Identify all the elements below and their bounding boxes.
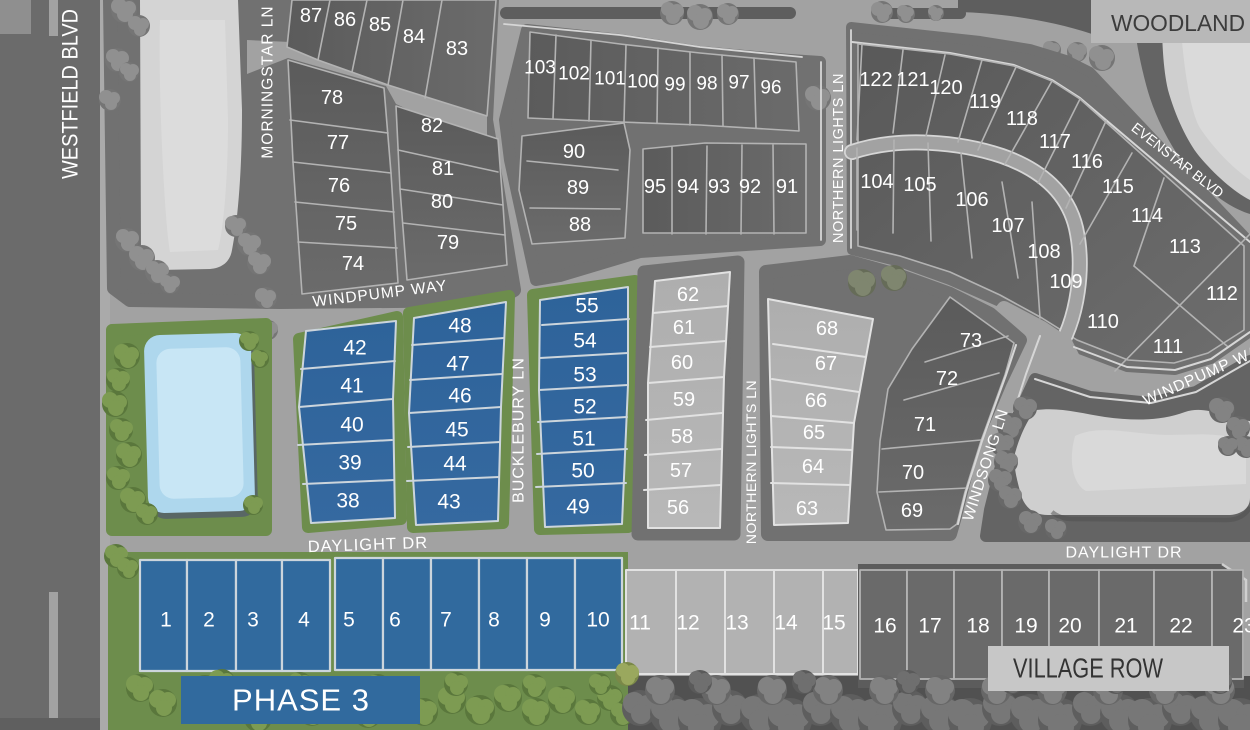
svg-text:23: 23 (1232, 615, 1250, 638)
svg-text:6: 6 (389, 609, 401, 632)
svg-text:112: 112 (1206, 283, 1238, 305)
svg-text:68: 68 (816, 318, 838, 340)
svg-text:106: 106 (955, 189, 988, 211)
svg-text:75: 75 (335, 213, 357, 235)
svg-text:56: 56 (667, 497, 689, 519)
svg-text:MORNINGSTAR LN: MORNINGSTAR LN (260, 5, 277, 158)
svg-text:47: 47 (446, 353, 469, 376)
svg-text:72: 72 (936, 368, 958, 390)
svg-text:92: 92 (739, 176, 761, 198)
svg-text:18: 18 (966, 615, 989, 638)
svg-text:64: 64 (802, 456, 824, 478)
svg-text:1: 1 (160, 609, 172, 632)
svg-text:96: 96 (760, 78, 781, 99)
svg-text:115: 115 (1102, 176, 1134, 198)
svg-text:11: 11 (629, 612, 651, 635)
svg-text:110: 110 (1087, 311, 1119, 333)
svg-text:17: 17 (918, 615, 941, 638)
svg-text:57: 57 (670, 460, 692, 482)
svg-text:NORTHERN LIGHTS LN: NORTHERN LIGHTS LN (831, 73, 847, 243)
svg-text:2: 2 (203, 609, 215, 632)
svg-text:51: 51 (572, 428, 595, 451)
svg-text:DAYLIGHT DR: DAYLIGHT DR (1065, 545, 1182, 562)
svg-text:86: 86 (334, 9, 356, 31)
svg-text:79: 79 (437, 232, 459, 254)
svg-text:100: 100 (627, 72, 659, 93)
svg-text:WOODLAND: WOODLAND (1111, 10, 1245, 36)
svg-text:104: 104 (860, 171, 893, 193)
svg-text:48: 48 (448, 315, 471, 338)
svg-text:91: 91 (776, 176, 798, 198)
svg-text:9: 9 (539, 609, 551, 632)
svg-text:58: 58 (671, 426, 693, 448)
svg-text:121: 121 (896, 69, 929, 91)
svg-text:38: 38 (336, 490, 359, 513)
svg-text:49: 49 (566, 496, 589, 519)
svg-text:94: 94 (677, 176, 699, 198)
svg-text:116: 116 (1071, 151, 1103, 173)
svg-text:59: 59 (673, 389, 695, 411)
svg-text:88: 88 (569, 214, 591, 236)
svg-text:122: 122 (859, 69, 892, 91)
svg-text:90: 90 (563, 141, 585, 163)
svg-text:82: 82 (421, 115, 443, 137)
svg-text:93: 93 (708, 176, 730, 198)
svg-text:102: 102 (558, 64, 590, 85)
svg-text:98: 98 (696, 74, 717, 95)
svg-text:108: 108 (1027, 241, 1060, 263)
svg-text:80: 80 (431, 191, 453, 213)
svg-text:VILLAGE ROW: VILLAGE ROW (1013, 653, 1163, 684)
svg-text:95: 95 (644, 176, 666, 198)
svg-text:78: 78 (321, 87, 343, 109)
svg-text:40: 40 (340, 414, 363, 437)
svg-text:60: 60 (671, 352, 693, 374)
svg-text:42: 42 (343, 337, 366, 360)
svg-text:12: 12 (676, 612, 699, 635)
svg-text:119: 119 (969, 91, 1001, 113)
svg-text:76: 76 (328, 175, 350, 197)
svg-text:55: 55 (575, 295, 598, 318)
svg-text:118: 118 (1006, 108, 1038, 130)
svg-text:105: 105 (903, 174, 936, 196)
svg-text:3: 3 (247, 609, 259, 632)
svg-text:5: 5 (343, 609, 355, 632)
svg-text:111: 111 (1153, 336, 1183, 358)
svg-text:71: 71 (914, 414, 936, 436)
svg-text:WESTFIELD BLVD: WESTFIELD BLVD (58, 9, 83, 179)
svg-text:73: 73 (960, 330, 982, 352)
svg-text:39: 39 (338, 452, 361, 475)
svg-text:99: 99 (664, 75, 685, 96)
svg-text:50: 50 (571, 460, 594, 483)
svg-text:85: 85 (369, 14, 391, 36)
svg-text:83: 83 (446, 38, 468, 60)
svg-text:20: 20 (1058, 615, 1081, 638)
svg-text:81: 81 (432, 158, 454, 180)
svg-text:14: 14 (774, 612, 798, 635)
svg-text:PHASE 3: PHASE 3 (232, 683, 370, 718)
svg-text:66: 66 (805, 390, 827, 412)
svg-text:63: 63 (796, 498, 818, 520)
svg-text:114: 114 (1131, 205, 1163, 227)
svg-text:74: 74 (342, 253, 364, 275)
svg-text:117: 117 (1039, 131, 1071, 153)
svg-text:54: 54 (573, 330, 597, 353)
svg-text:13: 13 (725, 612, 748, 635)
svg-text:53: 53 (573, 364, 596, 387)
svg-text:46: 46 (448, 385, 471, 408)
svg-text:70: 70 (902, 462, 924, 484)
svg-text:87: 87 (300, 5, 322, 27)
svg-text:89: 89 (567, 177, 589, 199)
svg-text:43: 43 (437, 491, 460, 514)
svg-text:69: 69 (901, 500, 923, 522)
svg-text:107: 107 (991, 215, 1024, 237)
svg-text:22: 22 (1169, 615, 1192, 638)
svg-text:52: 52 (573, 396, 596, 419)
svg-text:19: 19 (1014, 615, 1037, 638)
svg-text:101: 101 (594, 69, 626, 90)
svg-text:65: 65 (803, 422, 825, 444)
svg-text:77: 77 (327, 132, 349, 154)
svg-text:4: 4 (298, 609, 310, 632)
svg-text:120: 120 (929, 77, 962, 99)
svg-text:NORTHERN LIGHTS LN: NORTHERN LIGHTS LN (743, 380, 759, 544)
svg-text:61: 61 (673, 317, 695, 339)
svg-text:BUCKLEBURY LN: BUCKLEBURY LN (511, 357, 528, 503)
svg-text:16: 16 (873, 615, 896, 638)
svg-text:67: 67 (815, 353, 837, 375)
svg-text:44: 44 (443, 453, 467, 476)
svg-text:113: 113 (1169, 236, 1201, 258)
svg-text:10: 10 (586, 609, 609, 632)
svg-text:15: 15 (822, 612, 845, 635)
svg-text:21: 21 (1114, 615, 1137, 638)
svg-text:8: 8 (488, 609, 500, 632)
svg-text:62: 62 (677, 284, 699, 306)
svg-text:97: 97 (728, 73, 749, 94)
svg-text:41: 41 (340, 375, 363, 398)
svg-text:45: 45 (445, 419, 468, 442)
svg-text:7: 7 (440, 609, 452, 632)
svg-text:109: 109 (1049, 271, 1082, 293)
svg-text:103: 103 (524, 58, 556, 79)
svg-text:84: 84 (403, 26, 425, 48)
